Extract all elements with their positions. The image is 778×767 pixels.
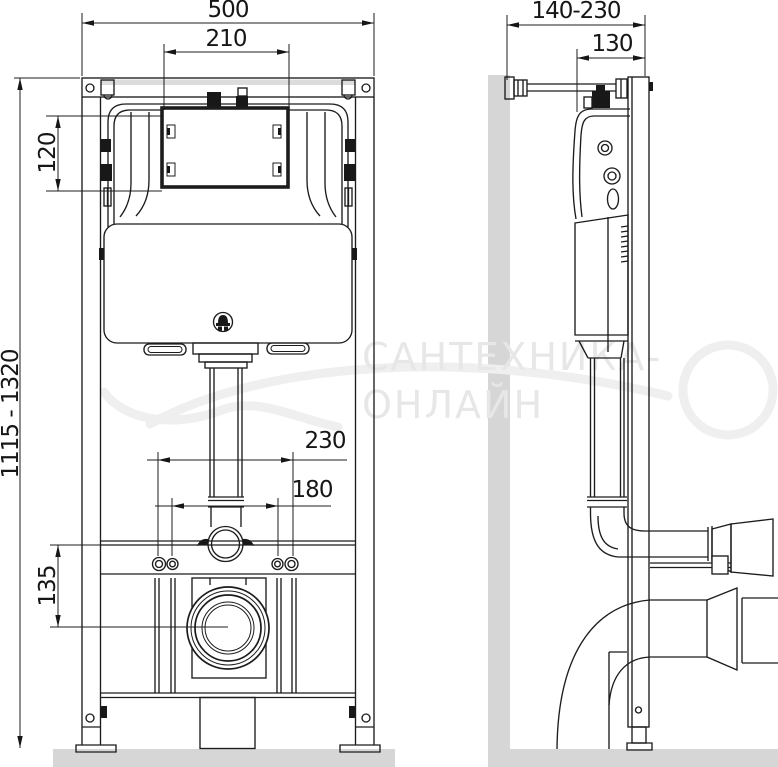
side-foot-plate <box>627 743 652 750</box>
flush-valve-and-pipe <box>193 343 258 562</box>
flush-pipe-bend <box>208 527 243 562</box>
dim-wall-distance-label: 140-230 <box>531 0 620 24</box>
mounting-stud-nut <box>712 556 728 574</box>
front-view <box>76 78 380 752</box>
stud-socket <box>272 559 283 570</box>
waste-outlet-socket <box>187 587 269 669</box>
water-inlet-connector <box>592 91 610 108</box>
dim-window-height: 120 <box>35 116 162 191</box>
dim-frame-depth: 130 <box>577 31 645 112</box>
side-frame-rail <box>627 77 653 750</box>
dim-stud-spacing-inner-label: 180 <box>292 477 333 503</box>
side-foot <box>632 727 646 743</box>
installation-frame-drawing: САНТЕХНИКА- ОНЛАЙН <box>0 0 778 767</box>
top-fixing-hole-right <box>362 84 370 92</box>
dim-window-width-label: 210 <box>206 26 247 52</box>
dim-stud-spacing-outer-label: 230 <box>305 428 346 454</box>
dim-frame-depth-label: 130 <box>592 31 633 57</box>
watermark-ring <box>683 345 773 435</box>
watermark-line2: ОНЛАЙН <box>362 383 544 427</box>
push-plate-window <box>162 108 288 187</box>
dim-height-range-label: 1115 - 1320 <box>0 349 24 478</box>
drain-channel <box>200 698 255 749</box>
top-fixing-hole-left <box>86 84 94 92</box>
stud-socket <box>167 559 178 570</box>
cistern-cover <box>104 224 352 355</box>
side-waste-outlet <box>557 588 778 749</box>
bottom-fixing-hole-left <box>86 714 94 722</box>
dim-waste-height-label: 135 <box>35 566 61 607</box>
bottom-fixing-hole-right <box>362 714 370 722</box>
dim-window-height-label: 120 <box>35 132 61 173</box>
toilet-connector-cone <box>731 519 773 576</box>
side-view <box>505 77 778 750</box>
stud-socket <box>153 558 166 571</box>
technical-drawing-page: САНТЕХНИКА- ОНЛАЙН <box>0 0 778 767</box>
stud-socket <box>285 558 298 571</box>
dim-overall-width-label: 500 <box>208 0 249 23</box>
floor-side <box>488 749 778 767</box>
watermark: САНТЕХНИКА- ОНЛАЙН <box>104 335 773 435</box>
lower-assembly <box>101 541 356 749</box>
side-cistern <box>573 85 630 358</box>
dim-height-range: 1115 - 1320 <box>0 78 80 748</box>
